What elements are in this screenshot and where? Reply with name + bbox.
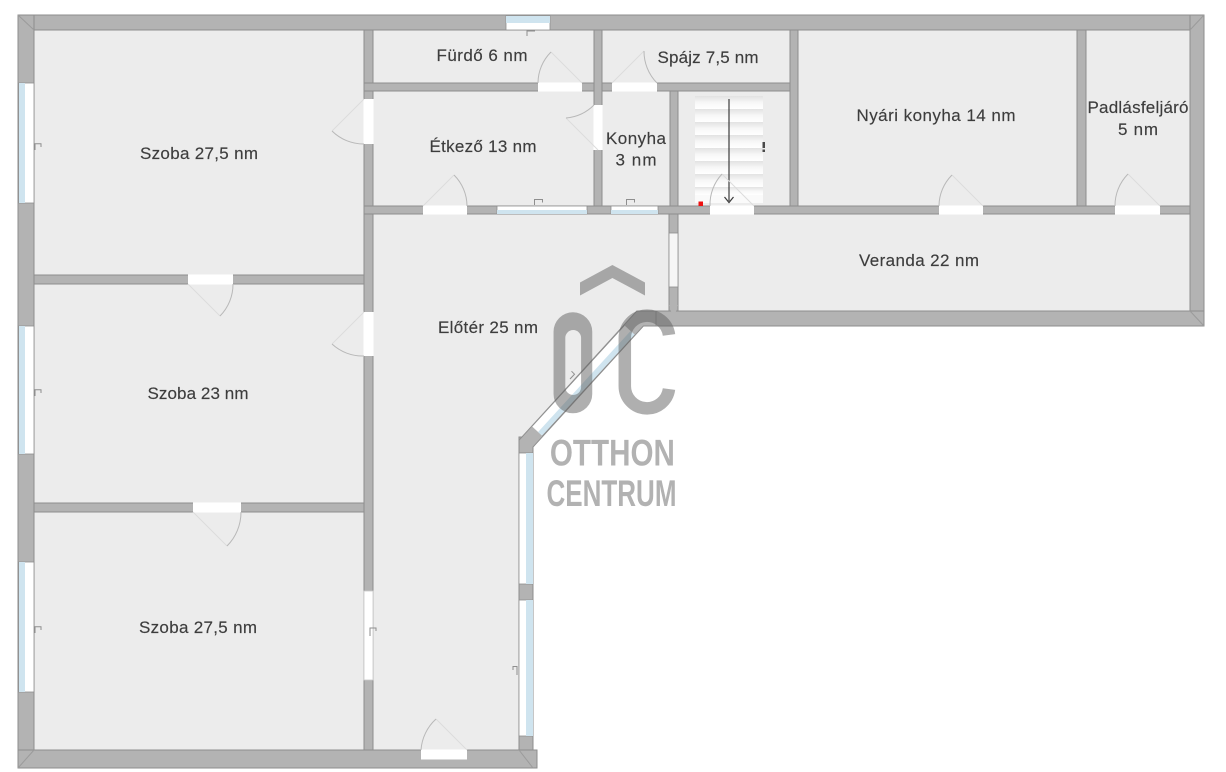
svg-text:5 nm: 5 nm xyxy=(1118,120,1158,139)
svg-text:Padlásfeljáró: Padlásfeljáró xyxy=(1088,98,1189,117)
svg-text:Étkező 13 nm: Étkező 13 nm xyxy=(430,137,537,156)
svg-text:Veranda 22 nm: Veranda 22 nm xyxy=(859,251,979,270)
svg-text:CENTRUM: CENTRUM xyxy=(547,473,677,514)
svg-text:Spájz 7,5 nm: Spájz 7,5 nm xyxy=(658,48,759,67)
svg-text:Nyári konyha 14 nm: Nyári konyha 14 nm xyxy=(857,106,1016,125)
svg-text:OTTHON: OTTHON xyxy=(550,433,675,474)
svg-text:Előtér 25 nm: Előtér 25 nm xyxy=(438,318,538,337)
svg-text:Szoba 27,5 nm: Szoba 27,5 nm xyxy=(140,144,258,163)
svg-text:3 nm: 3 nm xyxy=(616,151,657,170)
svg-text:Konyha: Konyha xyxy=(606,129,667,148)
svg-text:Szoba 27,5 nm: Szoba 27,5 nm xyxy=(139,618,257,637)
svg-text:Fürdő 6 nm: Fürdő 6 nm xyxy=(437,46,528,65)
svg-text:Szoba 23 nm: Szoba 23 nm xyxy=(148,384,249,403)
